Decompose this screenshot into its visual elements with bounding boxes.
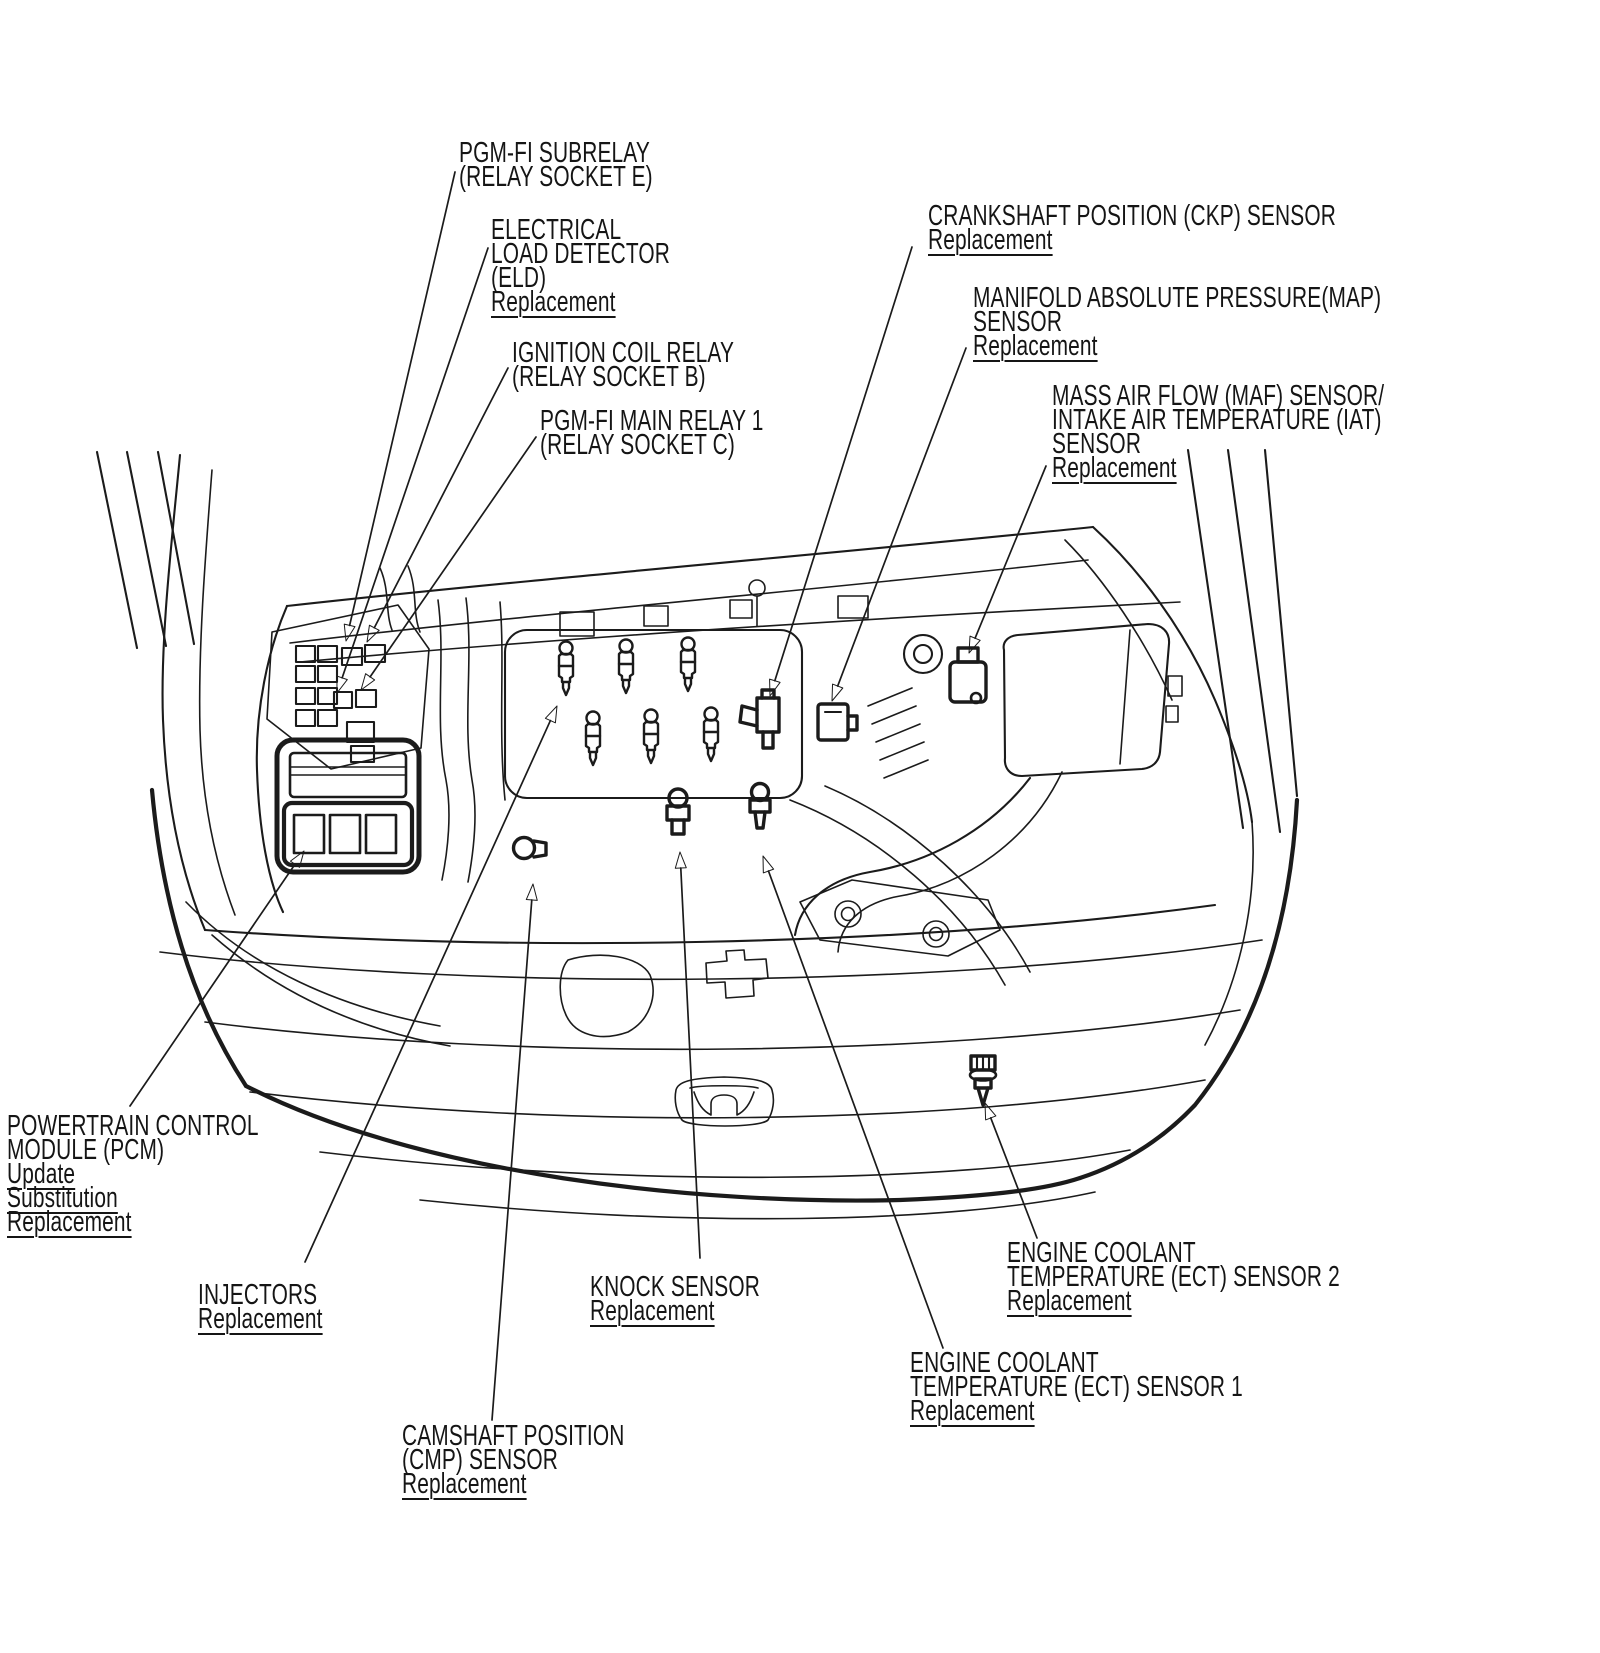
part-label-injectors: INJECTORSReplacement (198, 1283, 323, 1331)
part-name-text: (RELAY SOCKET B) (512, 365, 734, 389)
procedure-link-text: Replacement (198, 1307, 323, 1331)
labels-layer: PGM-FI SUBRELAY(RELAY SOCKET E)ELECTRICA… (0, 0, 1600, 1653)
engine-compartment-diagram: PGM-FI SUBRELAY(RELAY SOCKET E)ELECTRICA… (0, 0, 1600, 1653)
procedure-link-text: Replacement (1052, 456, 1384, 480)
part-label-maf-iat-sensor: MASS AIR FLOW (MAF) SENSOR/INTAKE AIR TE… (1052, 384, 1384, 480)
part-label-pgm-fi-main-relay-1: PGM-FI MAIN RELAY 1(RELAY SOCKET C) (540, 409, 764, 457)
part-label-ckp-sensor: CRANKSHAFT POSITION (CKP) SENSORReplacem… (928, 204, 1336, 252)
procedure-link-text: Replacement (402, 1472, 624, 1496)
part-label-pcm: POWERTRAIN CONTROLMODULE (PCM)UpdateSubs… (7, 1114, 259, 1234)
part-label-ignition-coil-relay: IGNITION COIL RELAY(RELAY SOCKET B) (512, 341, 734, 389)
procedure-link-text: Replacement (491, 290, 670, 314)
part-label-knock-sensor: KNOCK SENSORReplacement (590, 1275, 760, 1323)
part-label-pgm-fi-subrelay: PGM-FI SUBRELAY(RELAY SOCKET E) (459, 141, 653, 189)
part-name-text: (RELAY SOCKET C) (540, 433, 764, 457)
part-label-map-sensor: MANIFOLD ABSOLUTE PRESSURE(MAP)SENSORRep… (973, 286, 1381, 358)
part-label-eld: ELECTRICALLOAD DETECTOR(ELD)Replacement (491, 218, 670, 314)
procedure-link-text: Replacement (973, 334, 1381, 358)
part-label-ect-sensor-2: ENGINE COOLANTTEMPERATURE (ECT) SENSOR 2… (1007, 1241, 1340, 1313)
part-label-cmp-sensor: CAMSHAFT POSITION(CMP) SENSORReplacement (402, 1424, 624, 1496)
part-label-ect-sensor-1: ENGINE COOLANTTEMPERATURE (ECT) SENSOR 1… (910, 1351, 1243, 1423)
part-name-text: (RELAY SOCKET E) (459, 165, 653, 189)
procedure-link-text: Replacement (7, 1210, 259, 1234)
